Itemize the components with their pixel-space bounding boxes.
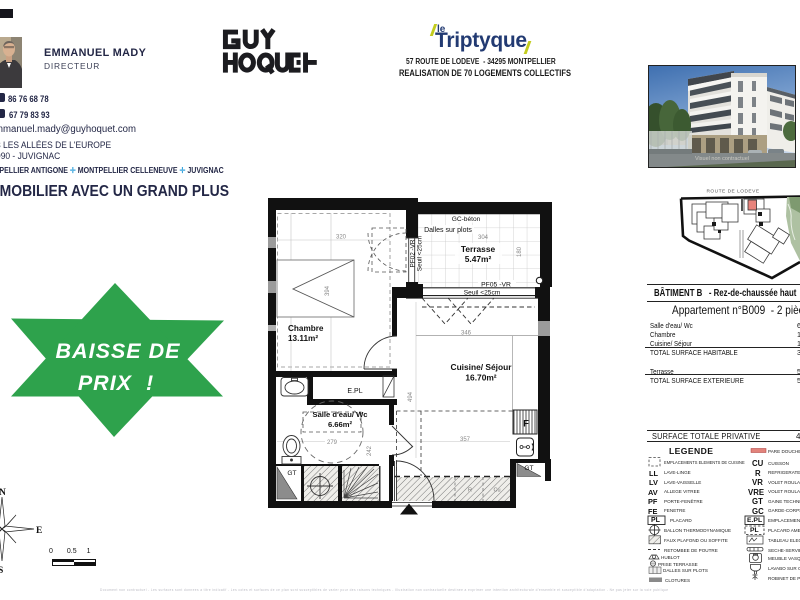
svg-text:BAISSE DE: BAISSE DE <box>56 339 181 363</box>
svg-text:R: R <box>468 488 472 494</box>
svg-text:Seuil <25cm: Seuil <25cm <box>417 236 424 271</box>
svg-text:ROUTE DE LODEVE: ROUTE DE LODEVE <box>706 189 759 195</box>
svg-text:Terrasse: Terrasse <box>461 244 496 254</box>
svg-text:Chambre: Chambre <box>288 324 324 333</box>
svg-text:GC-béton: GC-béton <box>452 216 481 223</box>
svg-text:PF05 -VR: PF05 -VR <box>481 281 511 288</box>
svg-text:GT: GT <box>287 470 296 477</box>
svg-text:279: 279 <box>327 440 338 446</box>
svg-text:494: 494 <box>408 391 414 402</box>
svg-text:6.66m²: 6.66m² <box>328 420 353 429</box>
svg-text:PRIX !: PRIX ! <box>78 371 154 395</box>
svg-text:5.47m²: 5.47m² <box>465 254 492 264</box>
svg-text:Visuel non contractuel: Visuel non contractuel <box>695 156 749 162</box>
svg-text:Cuisine/ Séjour: Cuisine/ Séjour <box>451 362 513 372</box>
svg-text:PF02 -VR: PF02 -VR <box>410 239 417 267</box>
svg-text:242: 242 <box>367 445 373 456</box>
svg-text:16.70m²: 16.70m² <box>465 373 496 383</box>
svg-text:346: 346 <box>461 331 472 337</box>
svg-text:F: F <box>523 419 529 429</box>
svg-text:E: E <box>36 526 42 536</box>
svg-text:GT: GT <box>524 465 533 472</box>
svg-text:394: 394 <box>325 285 331 296</box>
svg-text:Dalles sur plots: Dalles sur plots <box>424 227 472 234</box>
svg-text:S: S <box>0 566 3 576</box>
svg-text:357: 357 <box>460 437 471 443</box>
svg-text:304: 304 <box>478 235 489 241</box>
svg-text:Cu: Cu <box>493 488 500 494</box>
svg-text:180: 180 <box>517 246 523 257</box>
svg-text:E.PL: E.PL <box>347 388 362 395</box>
svg-text:13.11m²: 13.11m² <box>288 334 318 343</box>
svg-text:N: N <box>0 488 6 498</box>
svg-text:Salle d'eau/ Wc: Salle d'eau/ Wc <box>313 410 368 419</box>
svg-text:320: 320 <box>336 235 347 241</box>
svg-text:Seuil <25cm: Seuil <25cm <box>464 289 501 296</box>
